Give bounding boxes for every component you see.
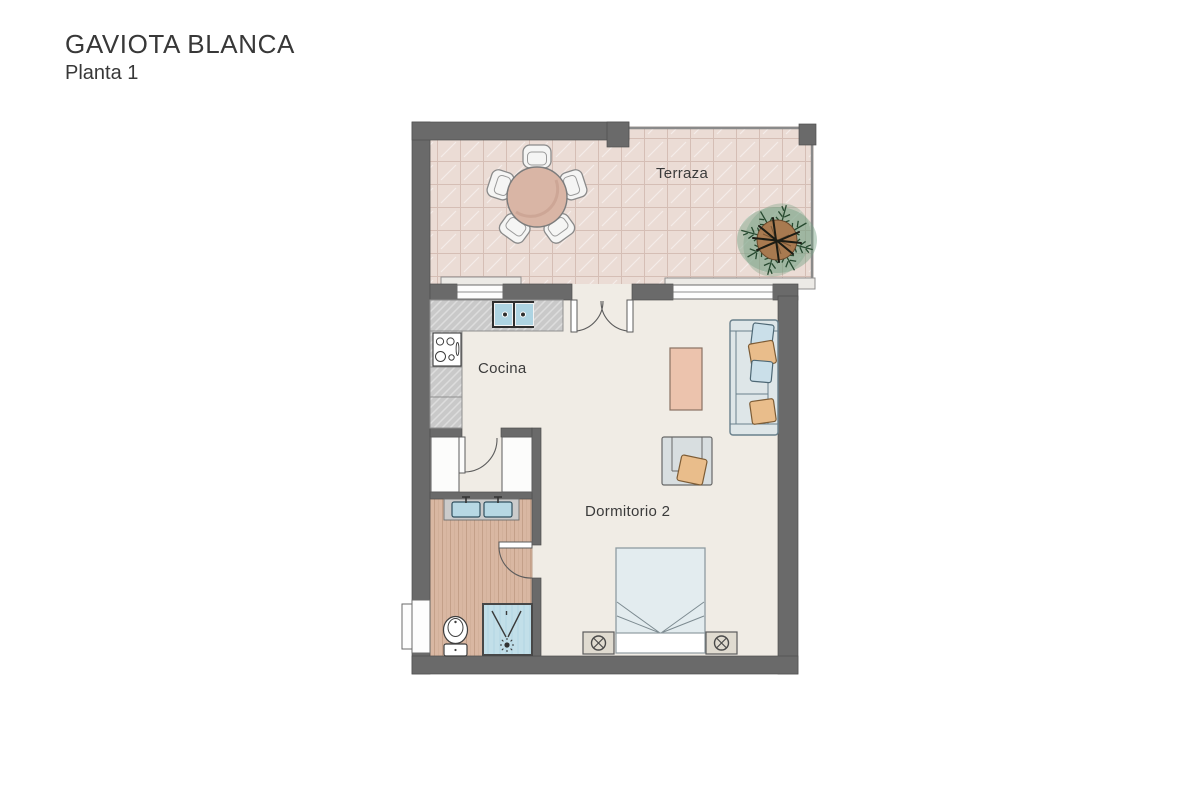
toilet [444,617,468,657]
wall-interior-3 [632,284,673,300]
bathroom-window [412,600,430,653]
sofa [730,320,778,435]
wall-hall-left [430,428,462,437]
bathroom-window-outer [402,604,412,649]
wall-bath-upper [532,428,541,545]
floorplan-drawing [400,116,820,678]
room-label-cocina: Cocina [478,360,527,377]
plan-subtitle: Planta 1 [65,62,295,85]
wall-right [778,296,798,674]
closet-panel-left [431,437,459,492]
terrace-corner-pillar [799,124,816,145]
wall-hall-right [501,428,532,437]
wall-bath-lower [532,578,541,656]
shower [483,604,532,655]
wall-interior-1 [430,284,457,300]
wall-column-top [607,122,629,147]
wall-interior-2 [503,284,572,300]
nightstand-right [706,632,737,654]
plan-title: GAVIOTA BLANCA [65,30,295,60]
pillow-orange-3 [677,455,708,486]
wall-bath-top [430,492,532,499]
bathroom-vanity [444,497,519,520]
pillow-orange-2 [749,398,776,424]
pillow-blue-2 [750,360,773,383]
bed-sheet [616,633,705,653]
nightstand-left [583,632,614,654]
wall-bottom [412,656,798,674]
hall-door-leaf [459,437,465,473]
closet-panel-right [502,437,532,492]
room-label-terraza: Terraza [656,165,708,182]
wall-left [412,122,430,674]
basin-right [484,502,512,517]
floorplan-page: GAVIOTA BLANCA Planta 1 [0,0,1200,800]
basin-left [452,502,480,517]
door-threshold [572,284,632,300]
room-label-dormitorio: Dormitorio 2 [585,503,670,520]
stove [433,333,461,366]
kitchen-sink [492,301,534,328]
coffee-table [670,348,702,410]
wall-top [412,122,629,140]
title-block: GAVIOTA BLANCA Planta 1 [65,30,295,85]
armchair [662,437,712,485]
bed [616,548,705,653]
